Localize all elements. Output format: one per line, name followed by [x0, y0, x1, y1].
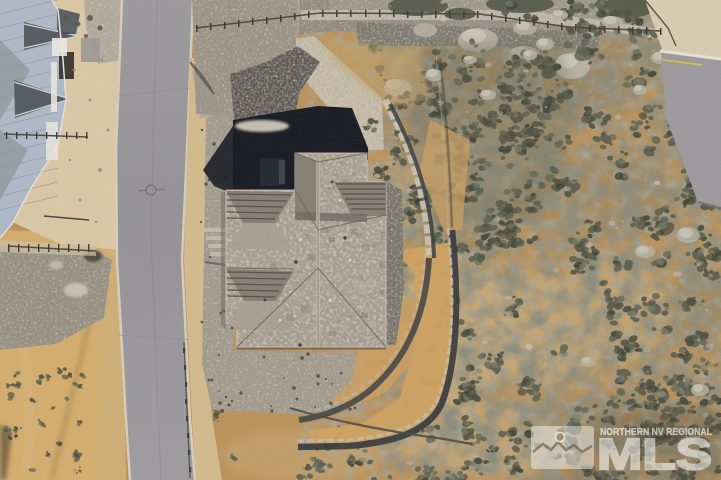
svg-text:MLS: MLS: [597, 430, 712, 479]
